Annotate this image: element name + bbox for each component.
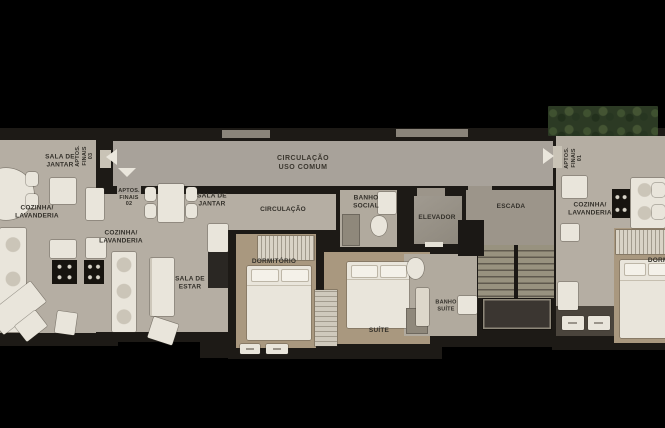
apt02-bedroom-wardrobe — [258, 236, 314, 260]
stairs-landing — [482, 298, 552, 330]
apt01-bedroom-bed — [620, 260, 665, 338]
label-apt02-dining: SALA DE JANTAR — [197, 193, 227, 210]
apt01-entry-arrow-icon — [543, 148, 554, 164]
planter-greenery — [548, 106, 658, 136]
shaft-duct — [458, 220, 484, 256]
label-corridor-common: CIRCULAÇÃO USO COMUM — [277, 154, 329, 172]
label-apt02-bedroom: DORMITÓRIO — [252, 258, 296, 266]
apt02-bedside-table — [266, 344, 288, 354]
pillow — [351, 265, 378, 278]
label-apt03-dining: SALA DE JANTAR — [45, 154, 75, 171]
apt03-refrigerator — [50, 240, 76, 258]
label-apt02-living: SALA DE ESTAR — [175, 276, 205, 293]
apt01-laundry-sink — [558, 282, 578, 310]
apt02-bedside-table — [240, 344, 260, 354]
apt01-entry-cabinet — [562, 176, 587, 198]
label-apt02-kitchen: COZINHA/ LAVANDERIA — [99, 230, 143, 247]
corridor-window-right — [396, 129, 468, 137]
apt03-entry-arrow-icon — [106, 149, 117, 165]
apt03-dining-chair — [26, 172, 38, 186]
corridor-window-left — [222, 130, 270, 138]
apt02-suite-bed — [347, 262, 409, 328]
apt01-counter-appliance — [588, 316, 610, 330]
pillow — [380, 265, 407, 278]
apt03-chair — [55, 311, 78, 336]
apt01-stove — [612, 189, 630, 218]
bath-suite-toilet — [407, 258, 424, 279]
apt01-dining-chair — [652, 205, 665, 219]
apt02-entry-cabinet — [86, 188, 104, 220]
apt02-entry-arrow-icon — [118, 168, 136, 177]
floor-plan: CIRCULAÇÃO USO COMUM ELEVADOR ESCADA APT… — [0, 0, 665, 428]
label-elevator: ELEVADOR — [418, 214, 455, 222]
apt01-entry-door — [553, 146, 562, 168]
apt02-dining-chair — [186, 204, 197, 218]
apt02-sofa — [150, 258, 174, 316]
apt02-bedroom-bed — [247, 266, 311, 340]
elevator-door-mark — [425, 242, 443, 247]
stairs-opening — [468, 186, 492, 194]
apt01-bedroom-wardrobe — [616, 230, 665, 254]
apt01-washer — [561, 224, 579, 241]
apt02-dining-chair — [145, 204, 156, 218]
pillow — [251, 269, 279, 282]
label-apt02-suite: SUÍTE — [369, 327, 389, 335]
label-stairs: ESCADA — [497, 203, 526, 211]
bath-social-toilet — [371, 216, 387, 236]
wall-block-step — [200, 330, 240, 358]
label-apt02-tag: APTOS. FINAIS 02 — [118, 188, 140, 208]
label-bath-suite: BANHO SUÍTE — [435, 299, 456, 312]
apt02-tall-cabinet — [208, 224, 228, 252]
bath-suite-counter — [416, 288, 429, 326]
elevator-door-opening — [417, 188, 445, 196]
apt02-sink-counter — [112, 252, 136, 332]
apt02-tv-panel — [208, 252, 228, 288]
bath-suite-sink — [458, 296, 477, 314]
apt02-suite-closet — [315, 290, 337, 346]
bath-social-sink — [378, 192, 396, 214]
pillow — [624, 263, 646, 276]
corridor-floor — [113, 141, 553, 186]
apt02-stove — [84, 260, 104, 284]
apt01-dining-chair — [652, 183, 665, 197]
stairs-rail — [514, 245, 518, 298]
apt03-stove — [52, 260, 77, 284]
apt02-dining-chair — [186, 187, 197, 201]
apt03-cabinet — [50, 178, 76, 204]
label-apt01-tag: APTOS. FINAIS 01 — [564, 147, 584, 169]
label-apt01-bedroom: DORMITÓRIO — [648, 257, 665, 265]
pillow — [281, 269, 309, 282]
label-bath-social: BANHO SOCIAL — [353, 195, 379, 212]
label-apt02-hall: CIRCULAÇÃO — [260, 206, 306, 214]
apt01-counter-appliance — [562, 316, 584, 330]
label-apt03-kitchen: COZINHA/ LAVANDERIA — [15, 205, 59, 222]
label-apt03-tag: APTOS. FINAIS 03 — [75, 145, 95, 167]
label-apt01-kitchen: COZINHA/ LAVANDERIA — [568, 202, 612, 219]
apt02-dining-chair — [145, 187, 156, 201]
bath-social-shower — [342, 214, 360, 246]
apt02-dining-table — [158, 184, 184, 222]
